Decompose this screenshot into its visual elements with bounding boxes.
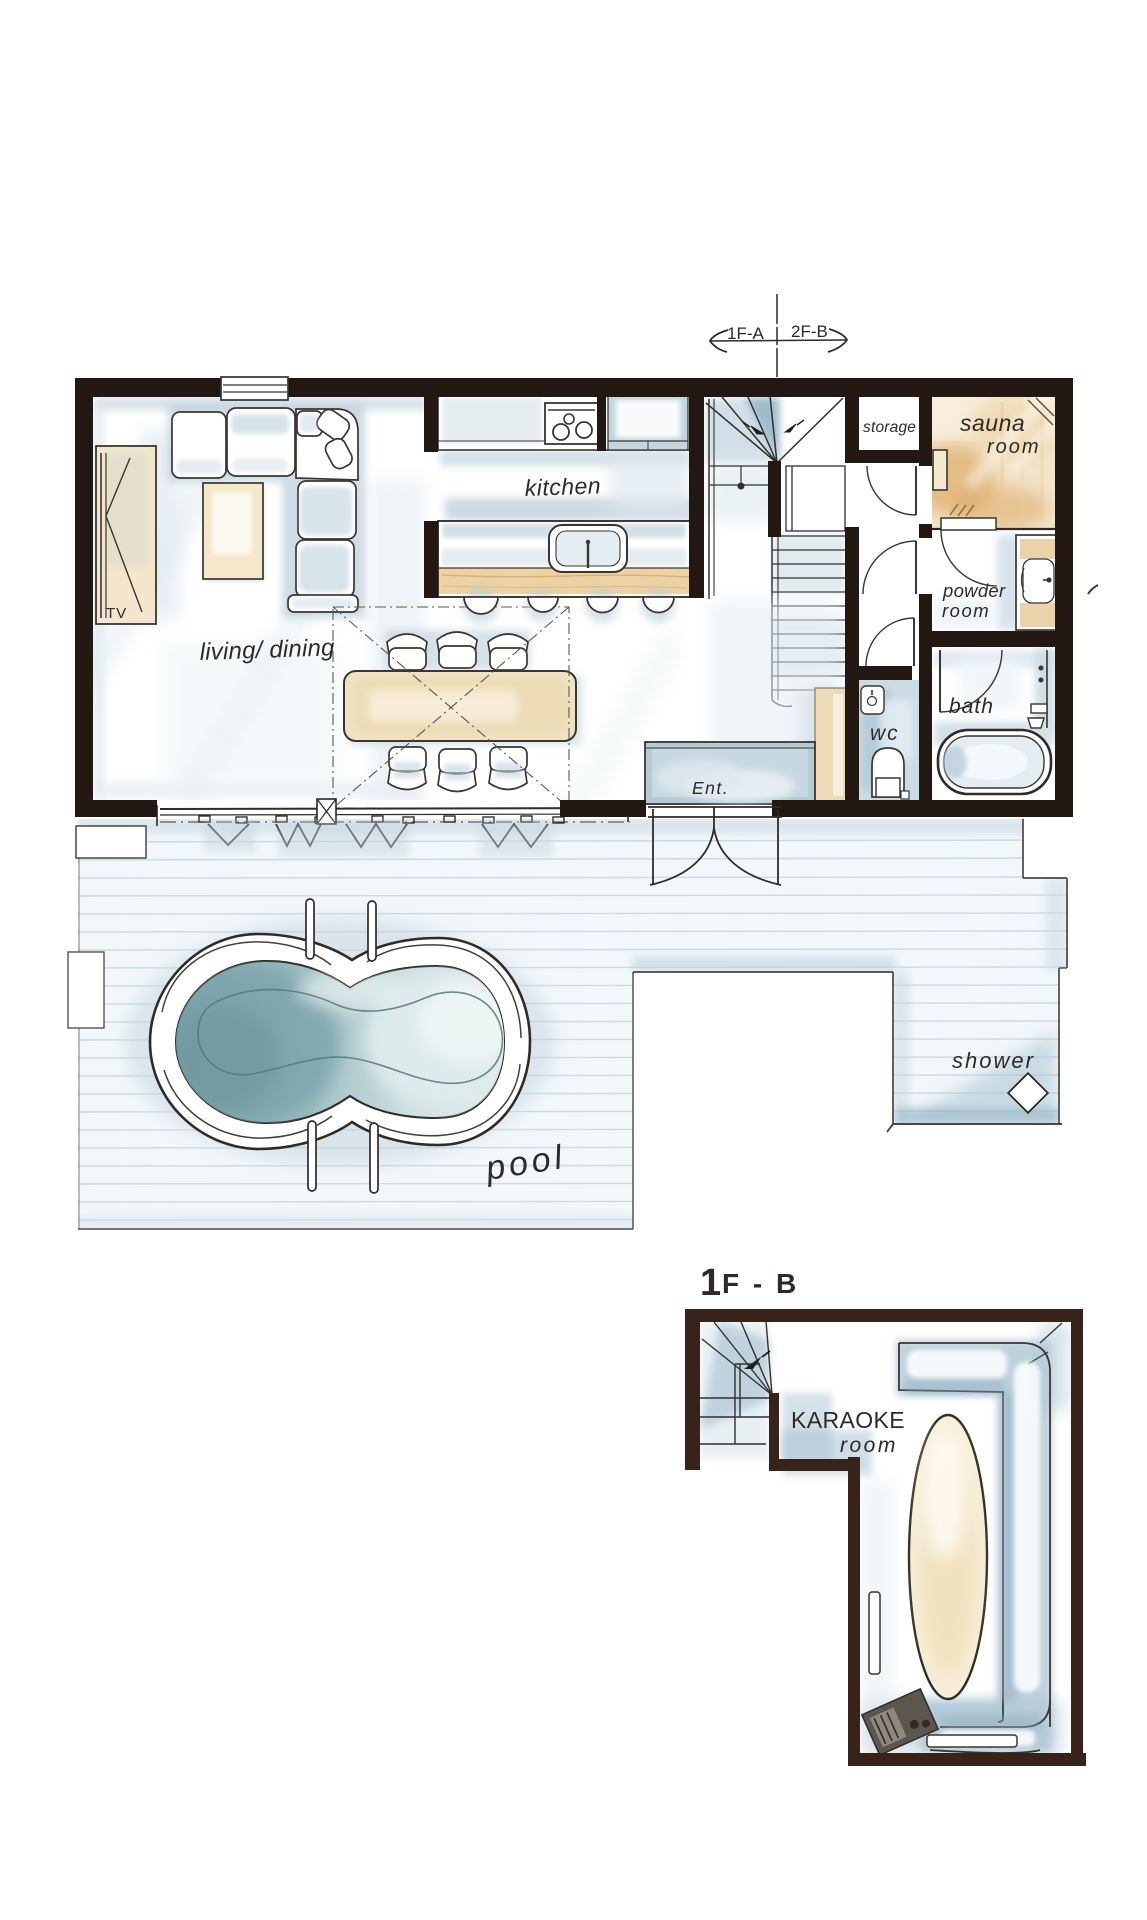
svg-text:shower: shower: [952, 1048, 1035, 1073]
svg-text:2F-B: 2F-B: [791, 322, 828, 341]
svg-text:kitchen: kitchen: [524, 472, 601, 501]
svg-text:room: room: [942, 600, 990, 621]
svg-text:room: room: [987, 436, 1041, 458]
svg-text:storage: storage: [863, 419, 916, 436]
svg-text:room: room: [840, 1434, 898, 1457]
svg-text:wc: wc: [870, 722, 900, 745]
svg-text:Ent.: Ent.: [692, 778, 729, 798]
svg-text:bath: bath: [949, 695, 994, 718]
svg-text:sauna: sauna: [960, 410, 1025, 436]
svg-text:KARAOKE: KARAOKE: [791, 1407, 905, 1433]
svg-text:1: 1: [700, 1262, 723, 1304]
svg-text:living/ dining: living/ dining: [199, 634, 335, 666]
svg-text:powder: powder: [942, 580, 1006, 601]
svg-text:TV: TV: [106, 605, 127, 622]
svg-text:F - B: F - B: [722, 1268, 799, 1299]
